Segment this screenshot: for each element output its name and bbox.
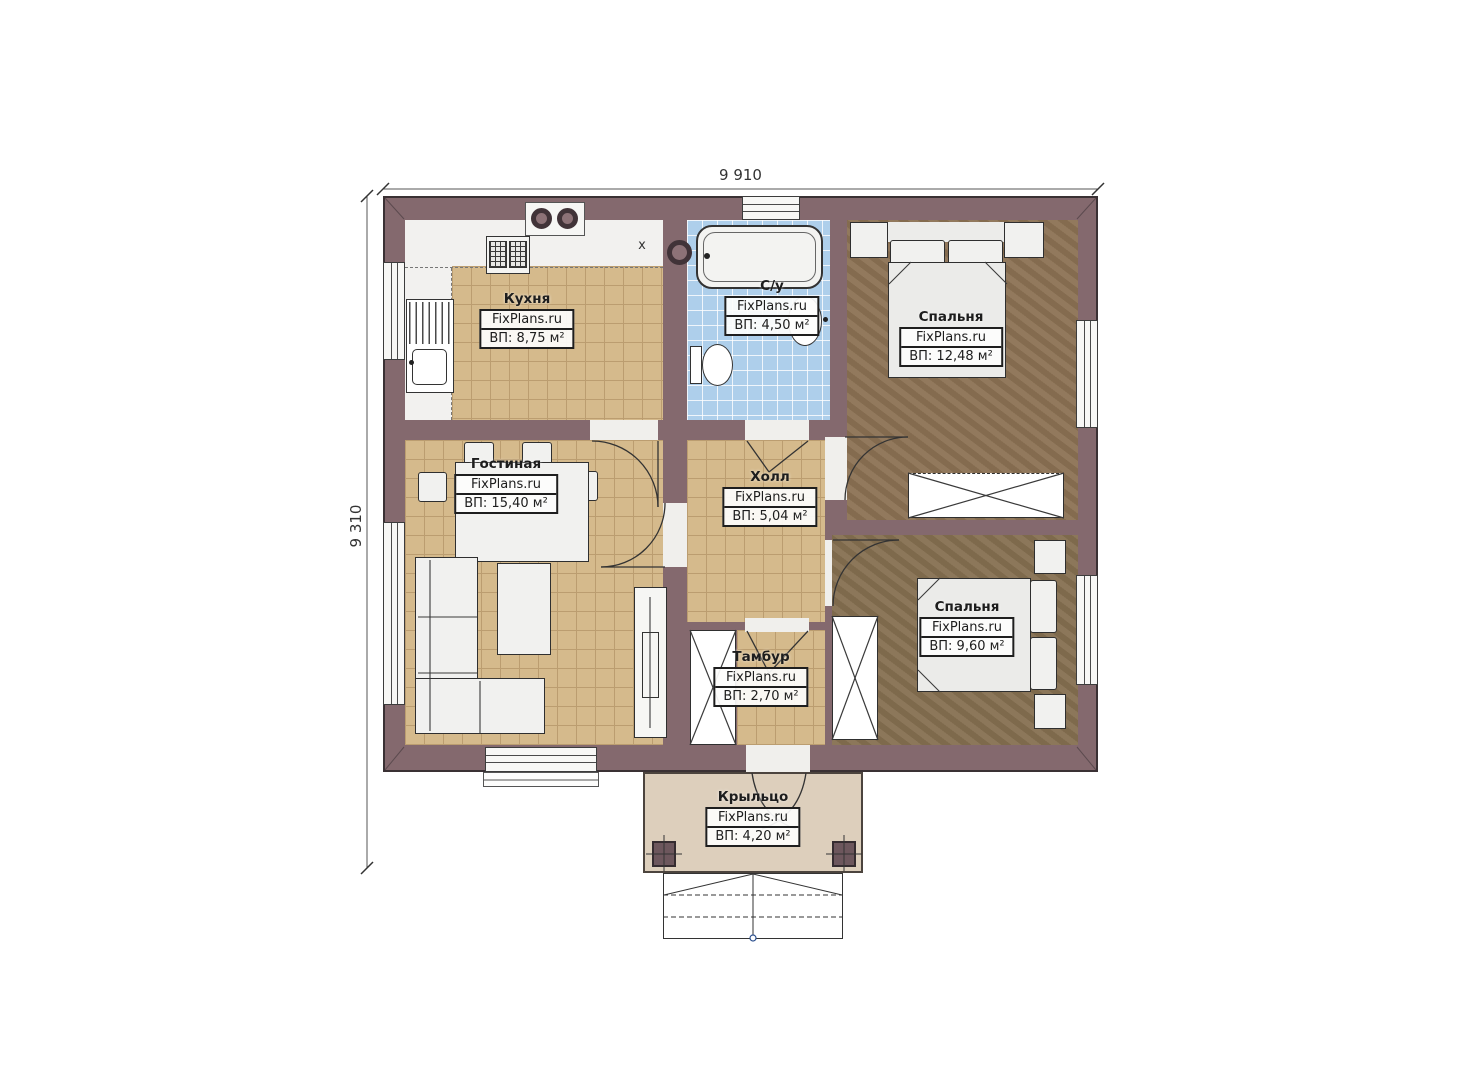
porch-post	[832, 841, 856, 867]
door-opening	[745, 420, 809, 440]
wall-vent-circle	[667, 240, 692, 265]
room-label-bedroom1: Спальня FixPlans.ru ВП: 12,48 м²	[899, 309, 1003, 367]
cabinet-inner	[642, 632, 659, 698]
dimension-left-label: 9 310	[347, 496, 365, 556]
nightstand	[850, 222, 888, 258]
watermark-text: FixPlans.ru	[901, 329, 1001, 348]
room-name: Гостиная	[454, 456, 558, 472]
porch-steps	[663, 873, 843, 939]
watermark-text: FixPlans.ru	[921, 619, 1012, 638]
nightstand	[1004, 222, 1044, 258]
watermark-text: FixPlans.ru	[726, 298, 817, 317]
room-label-kitchen: Кухня FixPlans.ru ВП: 8,75 м²	[479, 291, 574, 349]
watermark-text: FixPlans.ru	[715, 669, 806, 688]
chair	[418, 472, 447, 502]
area-text: ВП: 12,48 м²	[901, 348, 1001, 365]
door-opening	[825, 540, 832, 606]
counter-sink-mark: х	[630, 238, 654, 258]
nightstand	[1034, 694, 1066, 729]
window	[383, 522, 405, 705]
room-name: Спальня	[899, 309, 1003, 325]
dimension-top-label: 9 910	[383, 166, 1098, 184]
area-text: ВП: 2,70 м²	[715, 688, 806, 705]
door-opening	[590, 420, 658, 440]
room-name: Тамбур	[713, 649, 808, 665]
area-text: ВП: 15,40 м²	[456, 495, 556, 512]
area-text: ВП: 4,20 м²	[707, 828, 798, 845]
sink-faucet	[409, 360, 414, 365]
toilet	[702, 344, 733, 386]
vent-circle	[531, 208, 552, 229]
stove-burner	[509, 241, 527, 268]
watermark-text: FixPlans.ru	[456, 476, 556, 495]
vent-block	[525, 202, 585, 236]
room-name: Крыльцо	[705, 789, 800, 805]
bed-headboard	[888, 222, 1004, 242]
room-label-hall: Холл FixPlans.ru ВП: 5,04 м²	[722, 469, 817, 527]
room-name: Спальня	[919, 599, 1014, 615]
stove-burner	[489, 241, 507, 268]
wardrobe	[832, 616, 878, 740]
cabinet	[634, 587, 667, 738]
toilet-tank	[690, 346, 702, 384]
room-label-bedroom2: Спальня FixPlans.ru ВП: 9,60 м²	[919, 599, 1014, 657]
room-name: Кухня	[479, 291, 574, 307]
sink-bowl	[412, 349, 447, 385]
bathtub-inner	[703, 232, 816, 282]
window	[1076, 320, 1098, 428]
floor-plan-canvas: 9 910 9 310 х	[0, 0, 1473, 1080]
room-label-living: Гостиная FixPlans.ru ВП: 15,40 м²	[454, 456, 558, 514]
pillow	[1030, 580, 1057, 633]
area-text: ВП: 8,75 м²	[481, 330, 572, 347]
door-opening	[745, 618, 809, 632]
nightstand	[1034, 540, 1066, 574]
watermark-text: FixPlans.ru	[707, 809, 798, 828]
watermark-text: FixPlans.ru	[481, 311, 572, 330]
porch-post	[652, 841, 676, 867]
room-label-bathroom: С/у FixPlans.ru ВП: 4,50 м²	[724, 278, 819, 336]
coffee-table	[497, 563, 551, 655]
window	[383, 262, 405, 360]
washbasin-tap	[823, 317, 828, 322]
window	[485, 747, 597, 772]
door-opening	[825, 437, 847, 500]
room-floor-hall	[687, 440, 825, 622]
room-name: С/у	[724, 278, 819, 294]
kitchen-sink	[406, 299, 454, 393]
window-sill	[483, 772, 599, 787]
wardrobe	[908, 473, 1064, 518]
area-text: ВП: 5,04 м²	[724, 508, 815, 525]
watermark-text: FixPlans.ru	[724, 489, 815, 508]
room-label-tambour: Тамбур FixPlans.ru ВП: 2,70 м²	[713, 649, 808, 707]
door-opening	[663, 503, 687, 567]
bathtub-faucet	[704, 253, 710, 259]
area-text: ВП: 9,60 м²	[921, 638, 1012, 655]
window	[1076, 575, 1098, 685]
window	[742, 196, 800, 220]
room-label-porch: Крыльцо FixPlans.ru ВП: 4,20 м²	[705, 789, 800, 847]
vent-circle	[557, 208, 578, 229]
pillow	[1030, 637, 1057, 690]
sink-drainboard	[409, 302, 450, 344]
room-name: Холл	[722, 469, 817, 485]
entrance-door-opening	[746, 745, 810, 772]
sofa-section-horizontal	[415, 678, 545, 734]
area-text: ВП: 4,50 м²	[726, 317, 817, 334]
stove	[486, 236, 530, 274]
